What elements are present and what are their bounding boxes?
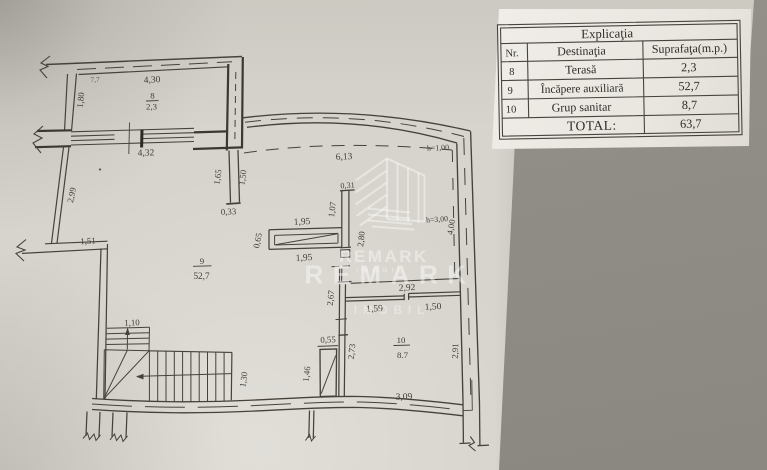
svg-text:2,80: 2,80 — [355, 230, 367, 247]
svg-text:0,55: 0,55 — [320, 334, 336, 345]
svg-text:1,51: 1,51 — [80, 235, 96, 246]
svg-text:1,46: 1,46 — [301, 365, 313, 382]
svg-text:6,13: 6,13 — [335, 152, 352, 163]
svg-text:8,7: 8,7 — [682, 98, 698, 112]
svg-text:52,7: 52,7 — [678, 79, 700, 93]
svg-text:8: 8 — [150, 90, 155, 100]
svg-text:4,30: 4,30 — [143, 75, 160, 86]
svg-text:8.7: 8.7 — [397, 350, 409, 360]
svg-text:9: 9 — [200, 256, 205, 266]
svg-text:REMARK: REMARK — [304, 260, 475, 290]
svg-text:0,31: 0,31 — [340, 181, 355, 191]
svg-text:h=1,00: h=1,00 — [427, 143, 449, 153]
svg-text:Nr.: Nr. — [505, 48, 518, 59]
svg-text:TOTAL:: TOTAL: — [567, 118, 617, 134]
svg-text:63,7: 63,7 — [680, 116, 702, 130]
svg-text:2,73: 2,73 — [346, 343, 358, 360]
svg-text:1,95: 1,95 — [293, 217, 310, 228]
svg-text:4,32: 4,32 — [138, 148, 155, 159]
svg-text:52,7: 52,7 — [193, 271, 209, 281]
svg-text:10: 10 — [506, 105, 517, 116]
svg-text:8: 8 — [509, 67, 514, 78]
svg-text:IMOBIL: IMOBIL — [354, 305, 430, 317]
svg-text:Suprafaţa(m.p.): Suprafaţa(m.p.) — [652, 41, 728, 56]
svg-text:7,7: 7,7 — [90, 75, 100, 84]
svg-text:Încăpere auxiliară: Încăpere auxiliară — [541, 80, 624, 96]
svg-text:2,67: 2,67 — [325, 289, 337, 306]
svg-text:Terasă: Terasă — [565, 62, 597, 77]
svg-text:0,33: 0,33 — [221, 206, 237, 217]
svg-text:Destinaţia: Destinaţia — [557, 43, 607, 58]
svg-text:1,80: 1,80 — [75, 91, 87, 108]
svg-text:h=3,00: h=3,00 — [426, 214, 449, 225]
svg-text:Grup sanitar: Grup sanitar — [552, 100, 612, 115]
svg-text:3,09: 3,09 — [396, 392, 413, 403]
svg-text:1,07: 1,07 — [326, 201, 338, 218]
svg-text:Explicaţia: Explicaţia — [581, 26, 633, 41]
svg-text:1,10: 1,10 — [124, 317, 140, 328]
svg-text:2,3: 2,3 — [146, 102, 158, 112]
svg-text:2,3: 2,3 — [681, 60, 697, 74]
svg-text:10: 10 — [397, 335, 406, 345]
svg-text:9: 9 — [507, 86, 512, 97]
svg-text:2,91: 2,91 — [450, 343, 461, 359]
